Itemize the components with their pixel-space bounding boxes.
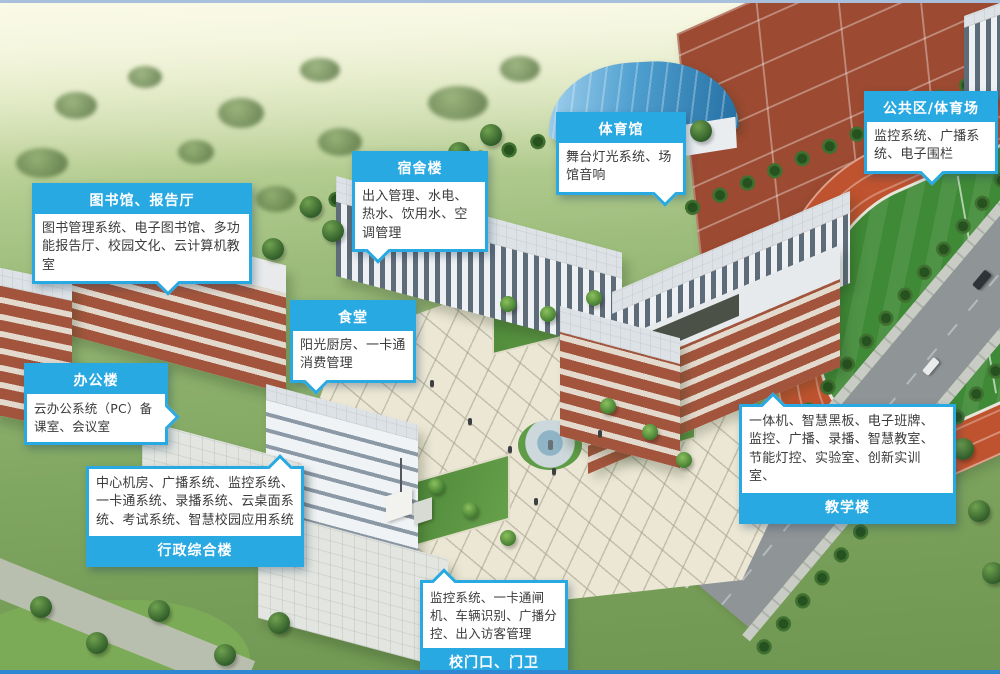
callout-dormitory-title: 宿舍楼 <box>355 154 485 182</box>
callout-office: 办公楼 云办公系统（PC）备课室、会议室 <box>24 363 168 445</box>
palm-tree <box>500 530 516 546</box>
callout-canteen-body: 阳光厨房、一卡通消费管理 <box>293 331 413 380</box>
far-tree <box>218 98 264 128</box>
tree <box>968 500 990 522</box>
palm-tree <box>462 502 478 518</box>
callout-office-body: 云办公系统（PC）备课室、会议室 <box>27 394 165 442</box>
tree <box>690 120 712 142</box>
callout-admin-complex-body: 中心机房、广播系统、监控系统、一卡通系统、录播系统、云桌面系统、考试系统、智慧校… <box>89 469 301 536</box>
person <box>534 498 538 505</box>
campus-aerial-view: 图书馆、报告厅 图书管理系统、电子图书馆、多功能报告厅、校园文化、云计算机教室 … <box>0 0 1000 674</box>
tree <box>322 220 344 242</box>
callout-public-stadium: 公共区/体育场 监控系统、广播系统、电子围栏 <box>864 91 998 174</box>
palm-tree <box>600 398 616 414</box>
palm-tree <box>642 424 658 440</box>
tree <box>30 596 52 618</box>
tree <box>262 238 284 260</box>
callout-teaching-body: 一体机、智慧黑板、电子班牌、监控、广播、录播、智慧教室、节能灯控、实验室、创新实… <box>742 407 953 493</box>
tree <box>268 612 290 634</box>
callout-dormitory-body: 出入管理、水电、热水、饮用水、空调管理 <box>355 182 485 249</box>
person <box>430 380 434 387</box>
palm-tree <box>586 290 602 306</box>
callout-teaching-title: 教学楼 <box>742 493 953 521</box>
callout-library-body: 图书管理系统、电子图书馆、多功能报告厅、校园文化、云计算机教室 <box>35 214 249 281</box>
callout-admin-complex-title: 行政综合楼 <box>89 536 301 564</box>
palm-tree <box>428 478 444 494</box>
callout-public-stadium-body: 监控系统、广播系统、电子围栏 <box>867 122 995 171</box>
far-tree <box>428 86 488 120</box>
callout-library-title: 图书馆、报告厅 <box>35 186 249 214</box>
callout-office-title: 办公楼 <box>27 366 165 394</box>
callout-canteen-title: 食堂 <box>293 303 413 331</box>
tree <box>86 632 108 654</box>
palm-tree <box>676 452 692 468</box>
callout-gymnasium-body: 舞台灯光系统、场馆音响 <box>559 143 683 192</box>
far-tree <box>16 148 68 178</box>
person <box>508 446 512 453</box>
callout-gymnasium-title: 体育馆 <box>559 115 683 143</box>
flag-pole <box>400 458 402 492</box>
tree <box>480 124 502 146</box>
callout-gate: 监控系统、一卡通闸机、车辆识别、广播分控、出入访客管理 校门口、门卫 <box>420 580 568 674</box>
palm-tree <box>540 306 556 322</box>
callout-dormitory: 宿舍楼 出入管理、水电、热水、饮用水、空调管理 <box>352 151 488 252</box>
tree <box>214 644 236 666</box>
far-tree <box>500 56 540 82</box>
callout-gymnasium: 体育馆 舞台灯光系统、场馆音响 <box>556 112 686 195</box>
callout-admin-complex: 中心机房、广播系统、监控系统、一卡通系统、录播系统、云桌面系统、考试系统、智慧校… <box>86 466 304 567</box>
callout-public-stadium-title: 公共区/体育场 <box>867 94 995 122</box>
top-border-line <box>0 0 1000 3</box>
callout-gate-body: 监控系统、一卡通闸机、车辆识别、广播分控、出入访客管理 <box>423 583 565 648</box>
callout-library: 图书馆、报告厅 图书管理系统、电子图书馆、多功能报告厅、校园文化、云计算机教室 <box>32 183 252 284</box>
palm-tree <box>500 296 516 312</box>
far-tree <box>178 140 214 164</box>
far-tree <box>128 66 162 88</box>
tree <box>982 562 1000 584</box>
person <box>552 468 556 475</box>
far-tree <box>300 58 340 82</box>
person <box>598 430 602 437</box>
tree <box>148 600 170 622</box>
callout-canteen: 食堂 阳光厨房、一卡通消费管理 <box>290 300 416 383</box>
person <box>468 418 472 425</box>
callout-teaching: 一体机、智慧黑板、电子班牌、监控、广播、录播、智慧教室、节能灯控、实验室、创新实… <box>739 404 956 524</box>
bottom-border-line <box>0 670 1000 674</box>
tree <box>300 196 322 218</box>
far-tree <box>55 92 97 119</box>
